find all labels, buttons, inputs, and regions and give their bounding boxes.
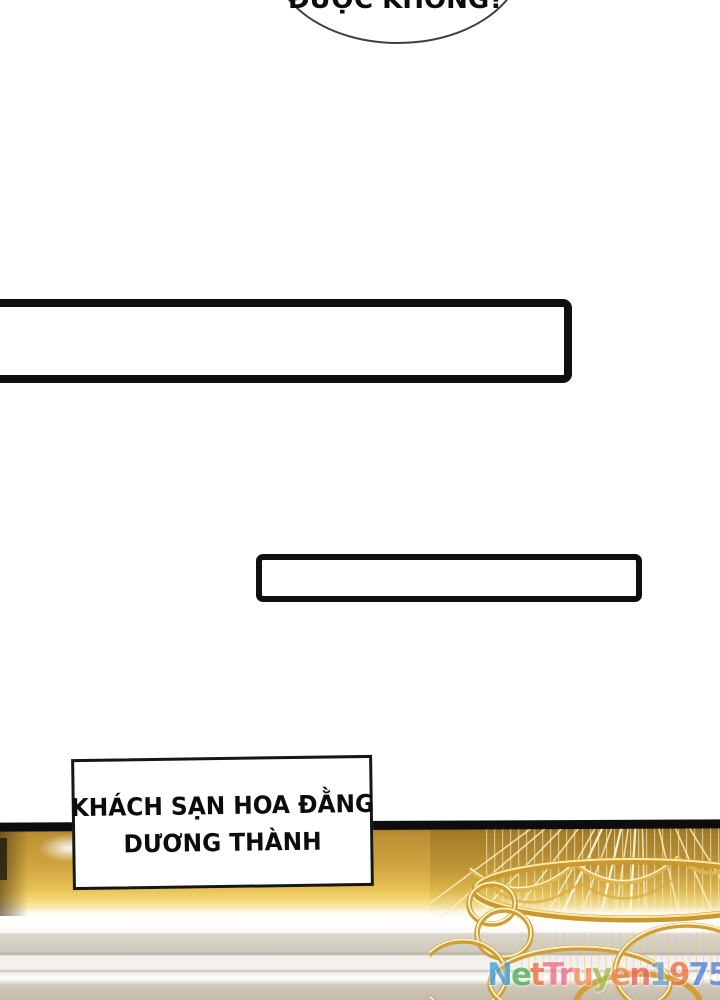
watermark-letter: n xyxy=(629,957,649,993)
watermark-letter: e xyxy=(610,957,629,993)
location-caption-box: KHÁCH SẠN HOA ĐẰNG DƯƠNG THÀNH xyxy=(71,755,374,890)
watermark-letter: u xyxy=(572,957,592,993)
watermark-letter: 9 xyxy=(669,957,689,993)
empty-text-box-1 xyxy=(0,299,572,383)
watermark-letter: y xyxy=(592,957,610,993)
watermark-letter: T xyxy=(543,957,559,993)
caption-line-2: DƯƠNG THÀNH xyxy=(123,822,322,862)
left-dark-edge xyxy=(0,838,7,880)
comic-page: ĐƯỢC KHÔNG? xyxy=(0,0,720,1000)
speech-bubble-text: ĐƯỢC KHÔNG? xyxy=(272,0,520,13)
empty-text-box-2 xyxy=(256,554,642,602)
watermark-letter: r xyxy=(559,957,572,993)
watermark-letter: N xyxy=(487,957,511,993)
watermark-letter: 1 xyxy=(649,957,669,993)
watermark-letter: t xyxy=(530,957,543,993)
watermark: NetTruyen1975 xyxy=(487,959,720,991)
caption-line-1: KHÁCH SẠN HOA ĐẰNG xyxy=(70,784,374,825)
watermark-letter: 7 xyxy=(688,957,708,993)
watermark-letter: e xyxy=(511,957,530,993)
watermark-letter: 5 xyxy=(708,957,720,993)
